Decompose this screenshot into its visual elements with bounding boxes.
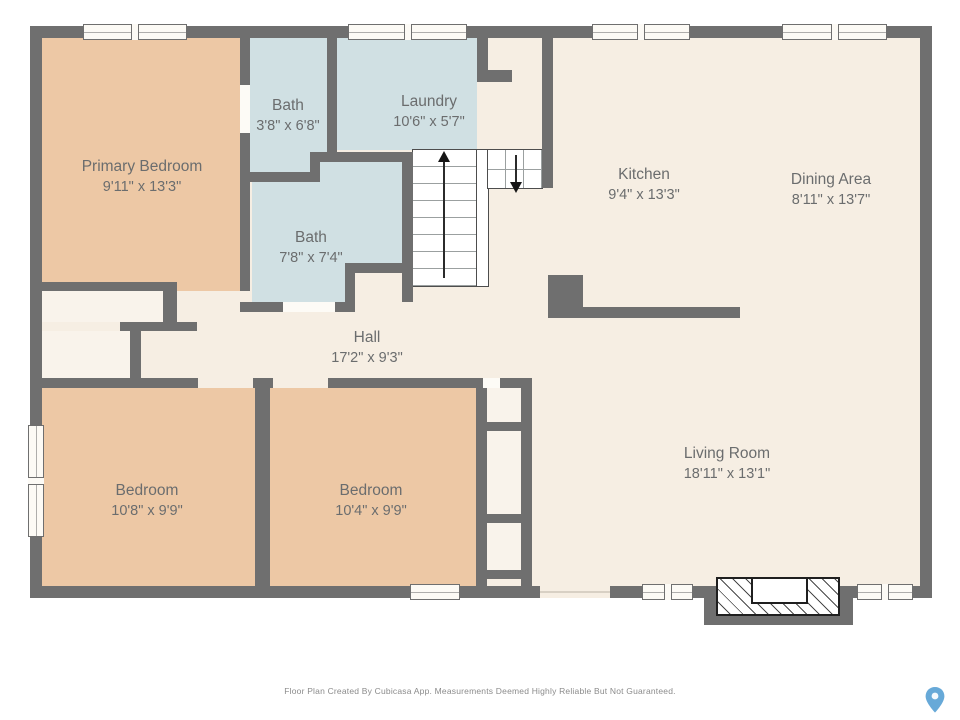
interior-wall bbox=[521, 388, 532, 586]
room-name: Dining Area bbox=[791, 169, 871, 190]
floor-closet bbox=[42, 291, 163, 322]
room-dimensions: 3'8" x 6'8" bbox=[256, 116, 319, 136]
interior-wall bbox=[487, 570, 521, 579]
fireplace-firebox bbox=[751, 577, 808, 604]
interior-wall bbox=[500, 378, 532, 388]
window-mullion bbox=[881, 584, 889, 600]
door-opening bbox=[483, 378, 500, 388]
room-label-primary-bedroom: Primary Bedroom 9'11" x 13'3" bbox=[82, 156, 203, 197]
door-opening bbox=[240, 85, 250, 133]
interior-wall bbox=[476, 388, 487, 586]
interior-wall bbox=[253, 378, 273, 388]
room-name: Bath bbox=[279, 227, 342, 248]
window bbox=[348, 24, 467, 40]
stairs-up-arrow-shaft bbox=[443, 162, 445, 278]
window bbox=[28, 425, 44, 537]
room-dimensions: 10'8" x 9'9" bbox=[111, 501, 182, 521]
window bbox=[83, 24, 187, 40]
interior-wall bbox=[477, 38, 488, 82]
interior-wall bbox=[315, 152, 412, 162]
window-mullion bbox=[831, 24, 839, 40]
floor-closet bbox=[487, 523, 521, 570]
room-name: Primary Bedroom bbox=[82, 156, 203, 177]
footer-disclaimer: Floor Plan Created By Cubicasa App. Meas… bbox=[0, 686, 960, 696]
window-mullion bbox=[664, 584, 672, 600]
room-label-kitchen: Kitchen 9'4" x 13'3" bbox=[608, 164, 679, 205]
room-label-laundry: Laundry 10'6" x 5'7" bbox=[393, 91, 464, 132]
interior-wall bbox=[32, 282, 175, 291]
interior-wall bbox=[242, 172, 320, 182]
stairs-down-arrow-shaft bbox=[515, 155, 517, 183]
interior-wall bbox=[327, 38, 337, 152]
interior-wall bbox=[345, 263, 412, 273]
interior-wall bbox=[487, 514, 532, 523]
room-name: Bath bbox=[256, 95, 319, 116]
stairs-down-arrow-icon bbox=[510, 182, 522, 193]
room-name: Bedroom bbox=[111, 480, 182, 501]
kitchen-counter bbox=[583, 307, 740, 318]
exterior-wall bbox=[920, 26, 932, 598]
interior-wall bbox=[487, 422, 532, 431]
window bbox=[642, 584, 693, 600]
interior-wall bbox=[402, 152, 413, 302]
room-dimensions: 7'8" x 7'4" bbox=[279, 248, 342, 268]
kitchen-counter bbox=[548, 275, 583, 318]
window bbox=[410, 584, 460, 600]
interior-wall bbox=[240, 302, 283, 312]
floor-plan: Primary Bedroom 9'11" x 13'3" Bath 3'8" … bbox=[0, 0, 960, 720]
stairs-up-arrow-icon bbox=[438, 151, 450, 162]
room-label-bedroom-middle: Bedroom 10'4" x 9'9" bbox=[335, 480, 406, 521]
staircase-rail bbox=[477, 150, 488, 286]
window-mullion bbox=[131, 24, 139, 40]
floor-hall-nook bbox=[355, 273, 402, 302]
window-mullion bbox=[637, 24, 645, 40]
interior-wall bbox=[310, 152, 320, 182]
room-dimensions: 10'6" x 5'7" bbox=[393, 112, 464, 132]
room-label-living-room: Living Room 18'11" x 13'1" bbox=[684, 443, 771, 484]
room-dimensions: 17'2" x 9'3" bbox=[331, 348, 402, 368]
floor-plan-page: Primary Bedroom 9'11" x 13'3" Bath 3'8" … bbox=[0, 0, 960, 720]
room-label-bath-small: Bath 3'8" x 6'8" bbox=[256, 95, 319, 136]
window bbox=[857, 584, 913, 600]
floor-closet bbox=[487, 388, 521, 422]
interior-wall bbox=[542, 38, 553, 188]
interior-wall bbox=[255, 388, 270, 586]
window-mullion bbox=[404, 24, 412, 40]
room-name: Hall bbox=[331, 327, 402, 348]
room-dimensions: 8'11" x 13'7" bbox=[791, 190, 871, 210]
interior-wall bbox=[328, 378, 483, 388]
room-label-bedroom-left: Bedroom 10'8" x 9'9" bbox=[111, 480, 182, 521]
room-label-dining-area: Dining Area 8'11" x 13'7" bbox=[791, 169, 871, 210]
floor-closet bbox=[487, 431, 521, 514]
room-name: Living Room bbox=[684, 443, 771, 464]
room-label-hall: Hall 17'2" x 9'3" bbox=[331, 327, 402, 368]
patio-door-opening bbox=[540, 591, 610, 593]
location-pin-icon bbox=[924, 686, 946, 714]
staircase-flight bbox=[413, 150, 477, 286]
interior-wall bbox=[488, 70, 512, 82]
window-mullion bbox=[28, 477, 44, 485]
floor-bath-main bbox=[320, 162, 402, 182]
room-label-bath-main: Bath 7'8" x 7'4" bbox=[279, 227, 342, 268]
interior-wall bbox=[240, 38, 250, 291]
door-opening bbox=[283, 302, 335, 312]
window bbox=[782, 24, 887, 40]
window bbox=[592, 24, 690, 40]
room-dimensions: 9'4" x 13'3" bbox=[608, 185, 679, 205]
floor-closet bbox=[42, 331, 130, 378]
room-name: Kitchen bbox=[608, 164, 679, 185]
room-dimensions: 9'11" x 13'3" bbox=[82, 177, 203, 197]
interior-wall bbox=[30, 378, 198, 388]
room-name: Laundry bbox=[393, 91, 464, 112]
room-dimensions: 18'11" x 13'1" bbox=[684, 464, 771, 484]
room-dimensions: 10'4" x 9'9" bbox=[335, 501, 406, 521]
room-name: Bedroom bbox=[335, 480, 406, 501]
